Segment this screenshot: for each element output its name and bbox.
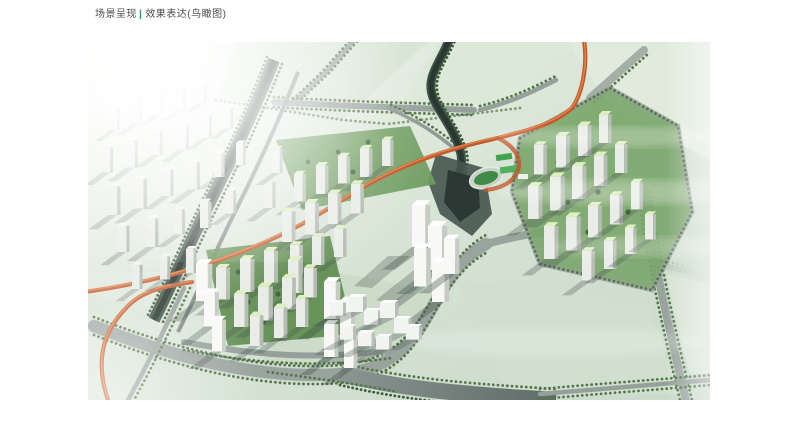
title-subsection: 效果表达(鸟瞰图) xyxy=(145,9,226,20)
slide: 场景呈现|效果表达(鸟瞰图) xyxy=(0,0,800,440)
page-title: 场景呈现|效果表达(鸟瞰图) xyxy=(95,8,226,22)
title-section: 场景呈现 xyxy=(95,9,137,20)
aerial-render-image xyxy=(88,42,710,400)
title-separator: | xyxy=(139,9,142,20)
sun-glare-overlay xyxy=(88,42,488,322)
